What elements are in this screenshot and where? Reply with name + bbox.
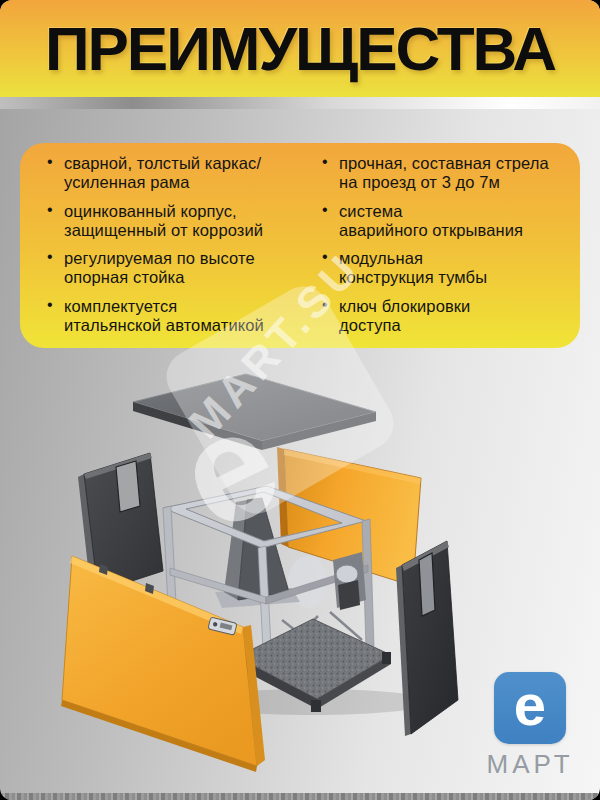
bullet-icon: • — [322, 201, 328, 220]
header: ПРЕИМУЩЕСТВА — [0, 0, 600, 97]
page-title: ПРЕИМУЩЕСТВА — [45, 13, 555, 84]
advantage-text: прочная, составная стрела на проезд от 3… — [339, 154, 549, 191]
bullet-icon: • — [322, 153, 328, 172]
logo-letter: е — [514, 676, 546, 734]
advantages-left-column: •сварной, толстый каркас/ усиленная рама… — [46, 154, 285, 344]
advantages-right-column: •прочная, составная стрела на проезд от … — [321, 154, 560, 344]
top-lid — [133, 374, 376, 450]
bullet-icon: • — [47, 248, 53, 267]
advantage-text: оцинкованный корпус, защищенный от корро… — [64, 202, 263, 239]
logo-name: МАРТ — [475, 749, 585, 780]
bullet-icon: • — [47, 296, 53, 315]
advantages-card: •сварной, толстый каркас/ усиленная рама… — [20, 143, 580, 348]
silver-divider — [0, 97, 600, 109]
bullet-icon: • — [322, 296, 328, 315]
right-side-panel — [396, 541, 458, 736]
brand-logo: е МАРТ — [475, 672, 585, 780]
gearbox — [333, 552, 366, 610]
bottom-texture-strip — [0, 793, 600, 800]
list-item: •регулируемая по высоте опорная стойка — [46, 249, 285, 288]
list-item: •комплектуется итальянской автоматикой — [46, 297, 285, 336]
list-item: •система аварийного открывания — [321, 202, 560, 241]
bullet-icon: • — [322, 248, 328, 267]
bullet-icon: • — [47, 153, 53, 172]
advantage-text: система аварийного открывания — [339, 202, 523, 239]
advantage-text: модульная конструкция тумбы — [339, 249, 487, 286]
list-item: •ключ блокировки доступа — [321, 297, 560, 336]
advantage-text: регулируемая по высоте опорная стойка — [64, 249, 255, 286]
list-item: •оцинкованный корпус, защищенный от корр… — [46, 202, 285, 241]
advantage-text: комплектуется итальянской автоматикой — [64, 297, 264, 334]
emart-logo-icon: е — [494, 672, 566, 744]
bullet-icon: • — [47, 201, 53, 220]
poster: ПРЕИМУЩЕСТВА •сварной, толстый каркас/ у… — [0, 0, 600, 800]
list-item: •прочная, составная стрела на проезд от … — [321, 154, 560, 193]
list-item: •сварной, толстый каркас/ усиленная рама — [46, 154, 285, 193]
advantage-text: ключ блокировки доступа — [339, 297, 470, 334]
list-item: •модульная конструкция тумбы — [321, 249, 560, 288]
advantage-text: сварной, толстый каркас/ усиленная рама — [64, 154, 261, 191]
